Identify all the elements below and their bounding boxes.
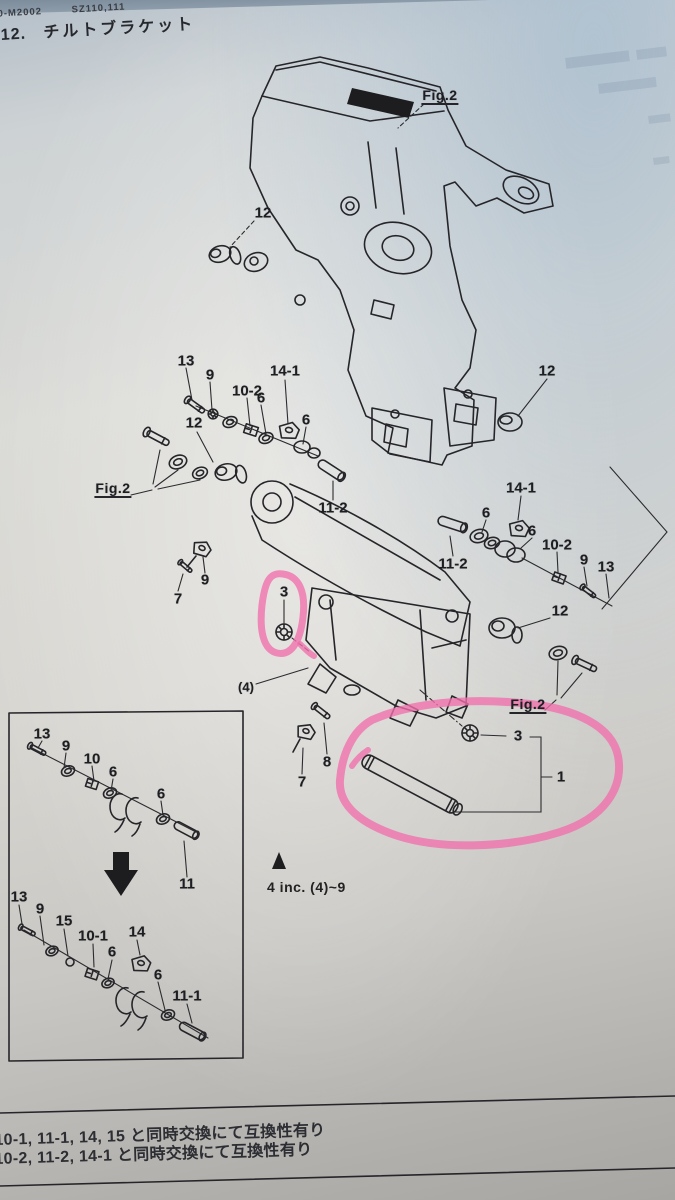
inset-box	[9, 711, 243, 1061]
down-arrow-icon	[104, 852, 138, 896]
fasteners-and-leaders	[131, 104, 667, 869]
tilt-bracket-body	[242, 57, 553, 465]
note-triangle-marker	[272, 852, 286, 869]
inclusion-note: 4 inc. (4)~9	[267, 879, 346, 895]
exploded-diagram	[0, 0, 675, 1200]
bleed-through-ghost-text	[565, 46, 671, 165]
photographed-manual-page: 10-M2002 SZ110,111 12. チルトブラケット	[0, 0, 675, 1200]
